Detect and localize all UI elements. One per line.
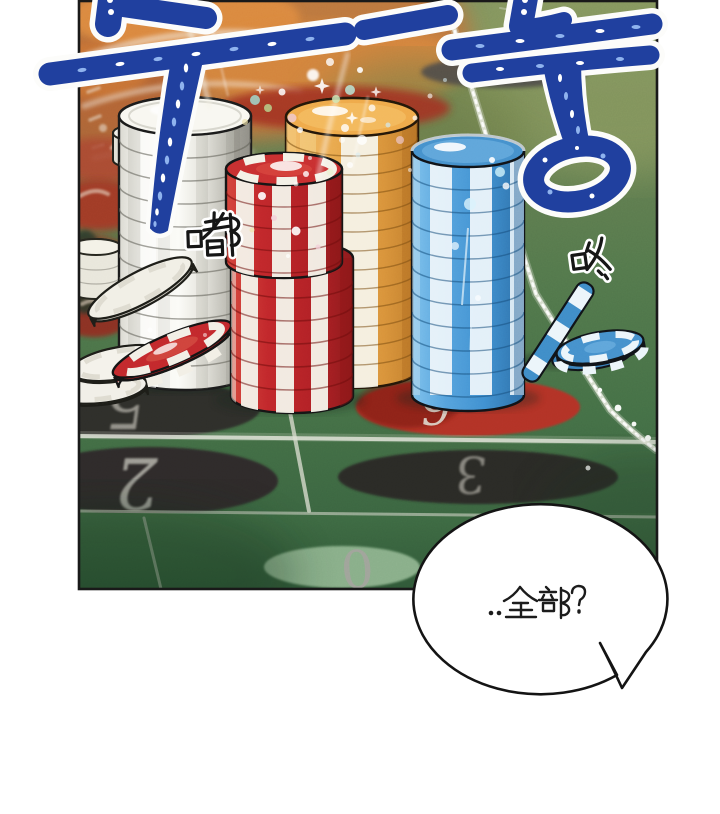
panel-illustration: 5 2 6 3 0 bbox=[0, 0, 720, 814]
speech-bubble bbox=[413, 504, 667, 694]
comic-page: 두 둥 嘟 咚 ..全部? bbox=[0, 0, 720, 814]
